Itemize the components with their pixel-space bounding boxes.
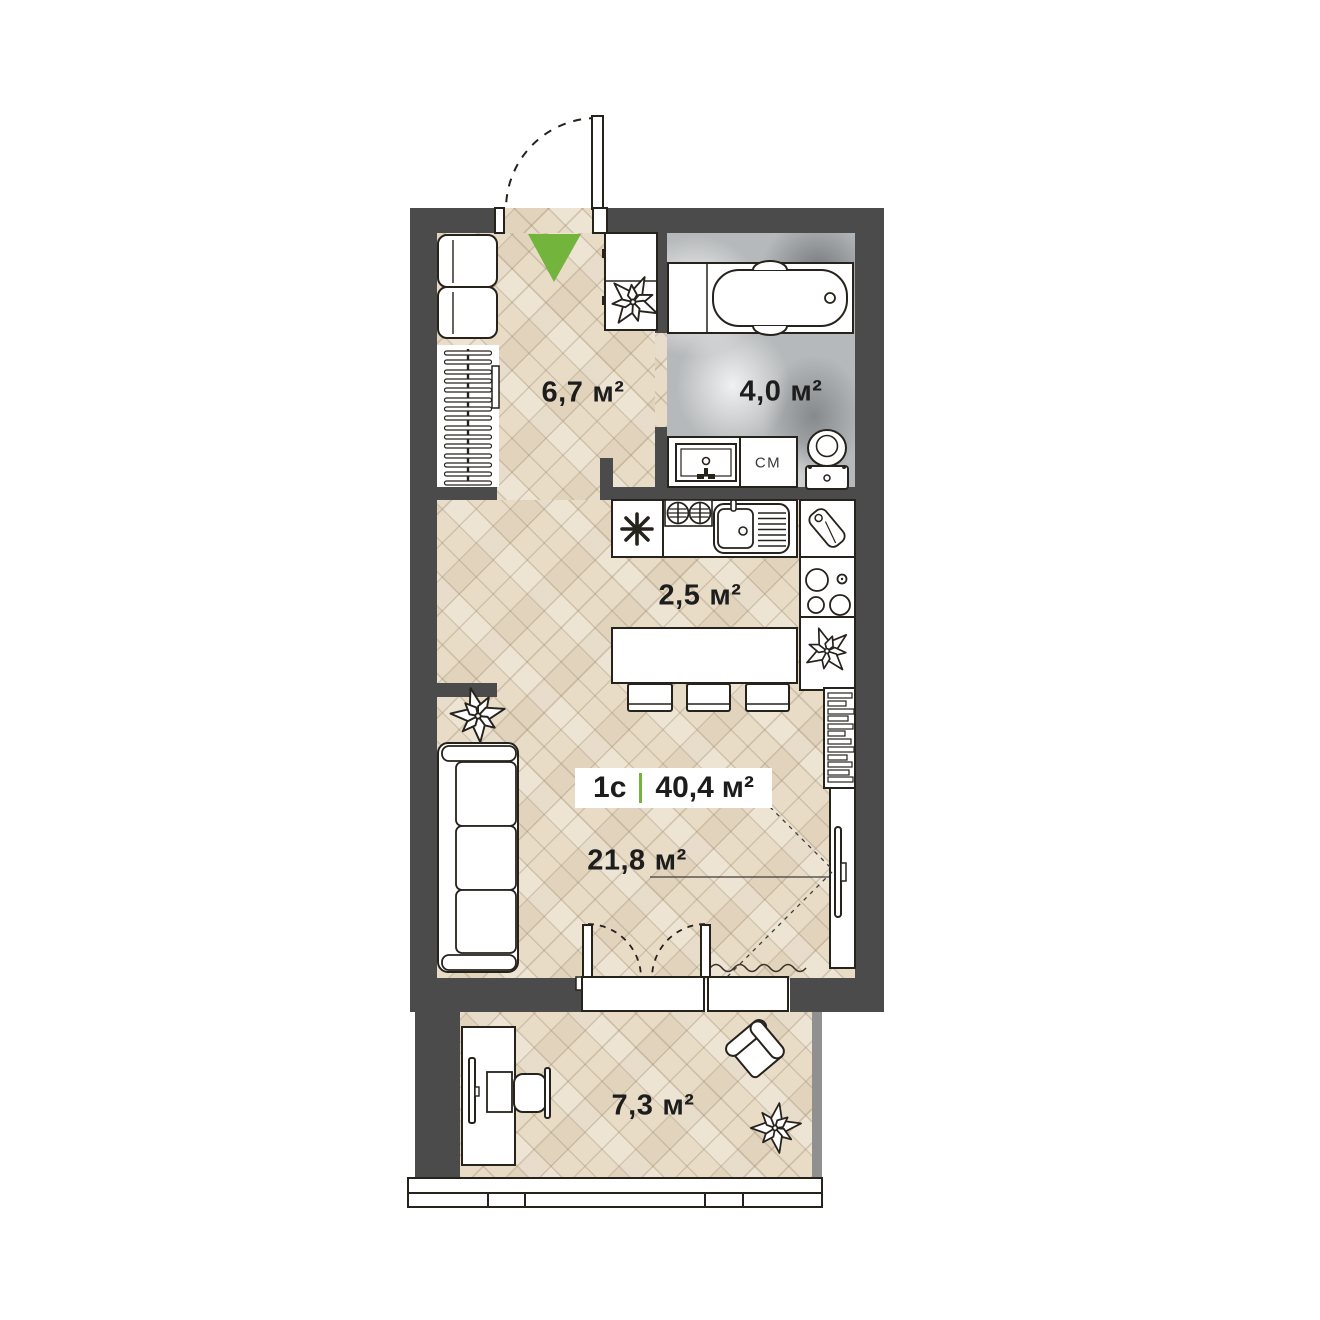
bathroom-area-unit: м²	[790, 376, 822, 408]
entry-bench	[438, 235, 497, 338]
hallway-area-value: 6,7	[542, 377, 584, 409]
kitchen-sink	[714, 500, 789, 553]
total-area-value: 40,4	[655, 771, 713, 805]
island-stool	[687, 684, 730, 711]
bathtub	[668, 261, 853, 335]
total-area-unit: м²	[722, 771, 754, 805]
room-area-label-kitchen: 2,5м²	[659, 580, 742, 613]
balcony-french-doors	[576, 924, 788, 1011]
balcony-door-leaf	[583, 925, 592, 977]
balcony-door-swing-arc	[588, 924, 641, 977]
floor-plan: 6,7м² 4,0м² 2,5м² 21,8м² 7,3м² 1с 40,4 м…	[0, 0, 1320, 1320]
hallway-area-unit: м²	[592, 377, 624, 409]
coil-burner-icon	[690, 502, 711, 524]
room-area-label-living: 21,8м²	[587, 845, 687, 878]
fridge-snowflake-icon	[622, 514, 652, 544]
wardrobe-rail	[437, 345, 499, 487]
entrance-marker-triangle	[528, 234, 581, 282]
balcony-window-sill	[708, 977, 788, 1011]
desk	[462, 1027, 515, 1165]
entrance-door-swing-arc	[506, 118, 597, 209]
balcony-plant-icon	[743, 1096, 809, 1161]
toilet	[806, 430, 848, 489]
entrance-door	[495, 116, 607, 233]
balcony-door-leaf	[701, 925, 710, 977]
kitchen-area-value: 2,5	[659, 580, 701, 612]
type-divider	[639, 773, 642, 803]
kitchen-island	[612, 628, 797, 711]
curtain-wave	[710, 965, 806, 972]
washing-machine-label: СМ	[755, 455, 781, 472]
entrance-right-jamb	[593, 208, 607, 233]
island-stool	[746, 684, 789, 711]
island-stool	[628, 684, 672, 711]
monitor-icon	[469, 1058, 475, 1123]
sofa	[438, 743, 518, 972]
bathroom-sink	[668, 437, 740, 487]
tv-icon	[835, 827, 841, 917]
room-area-label-bathroom: 4,0м²	[740, 376, 823, 409]
bookshelf	[824, 688, 855, 788]
kitchen-area-unit: м²	[709, 580, 741, 612]
balcony-glazing	[408, 1178, 822, 1207]
tv-console	[830, 788, 855, 968]
living-area-unit: м²	[655, 845, 687, 877]
balcony-door-swing-arc	[652, 924, 705, 977]
room-area-label-balcony: 7,3м²	[612, 1090, 695, 1123]
balcony-area-unit: м²	[662, 1090, 694, 1122]
armchair	[723, 1017, 788, 1082]
entrance-left-jamb	[495, 208, 504, 233]
bathroom-area-value: 4,0	[740, 376, 782, 408]
apartment-type: 1с	[593, 771, 626, 805]
balcony-door-sill	[582, 977, 704, 1011]
entrance-door-leaf	[592, 116, 603, 209]
balcony-area-value: 7,3	[612, 1090, 654, 1122]
room-area-label-hallway: 6,7м²	[542, 377, 625, 410]
coil-burner-icon	[668, 502, 689, 524]
apartment-type-total-label: 1с 40,4 м²	[575, 768, 772, 808]
kitchen-counter	[612, 500, 797, 557]
desk-chair	[514, 1068, 550, 1118]
living-plant-icon	[441, 677, 515, 751]
living-area-value: 21,8	[587, 845, 645, 877]
keyboard-icon	[487, 1072, 512, 1112]
